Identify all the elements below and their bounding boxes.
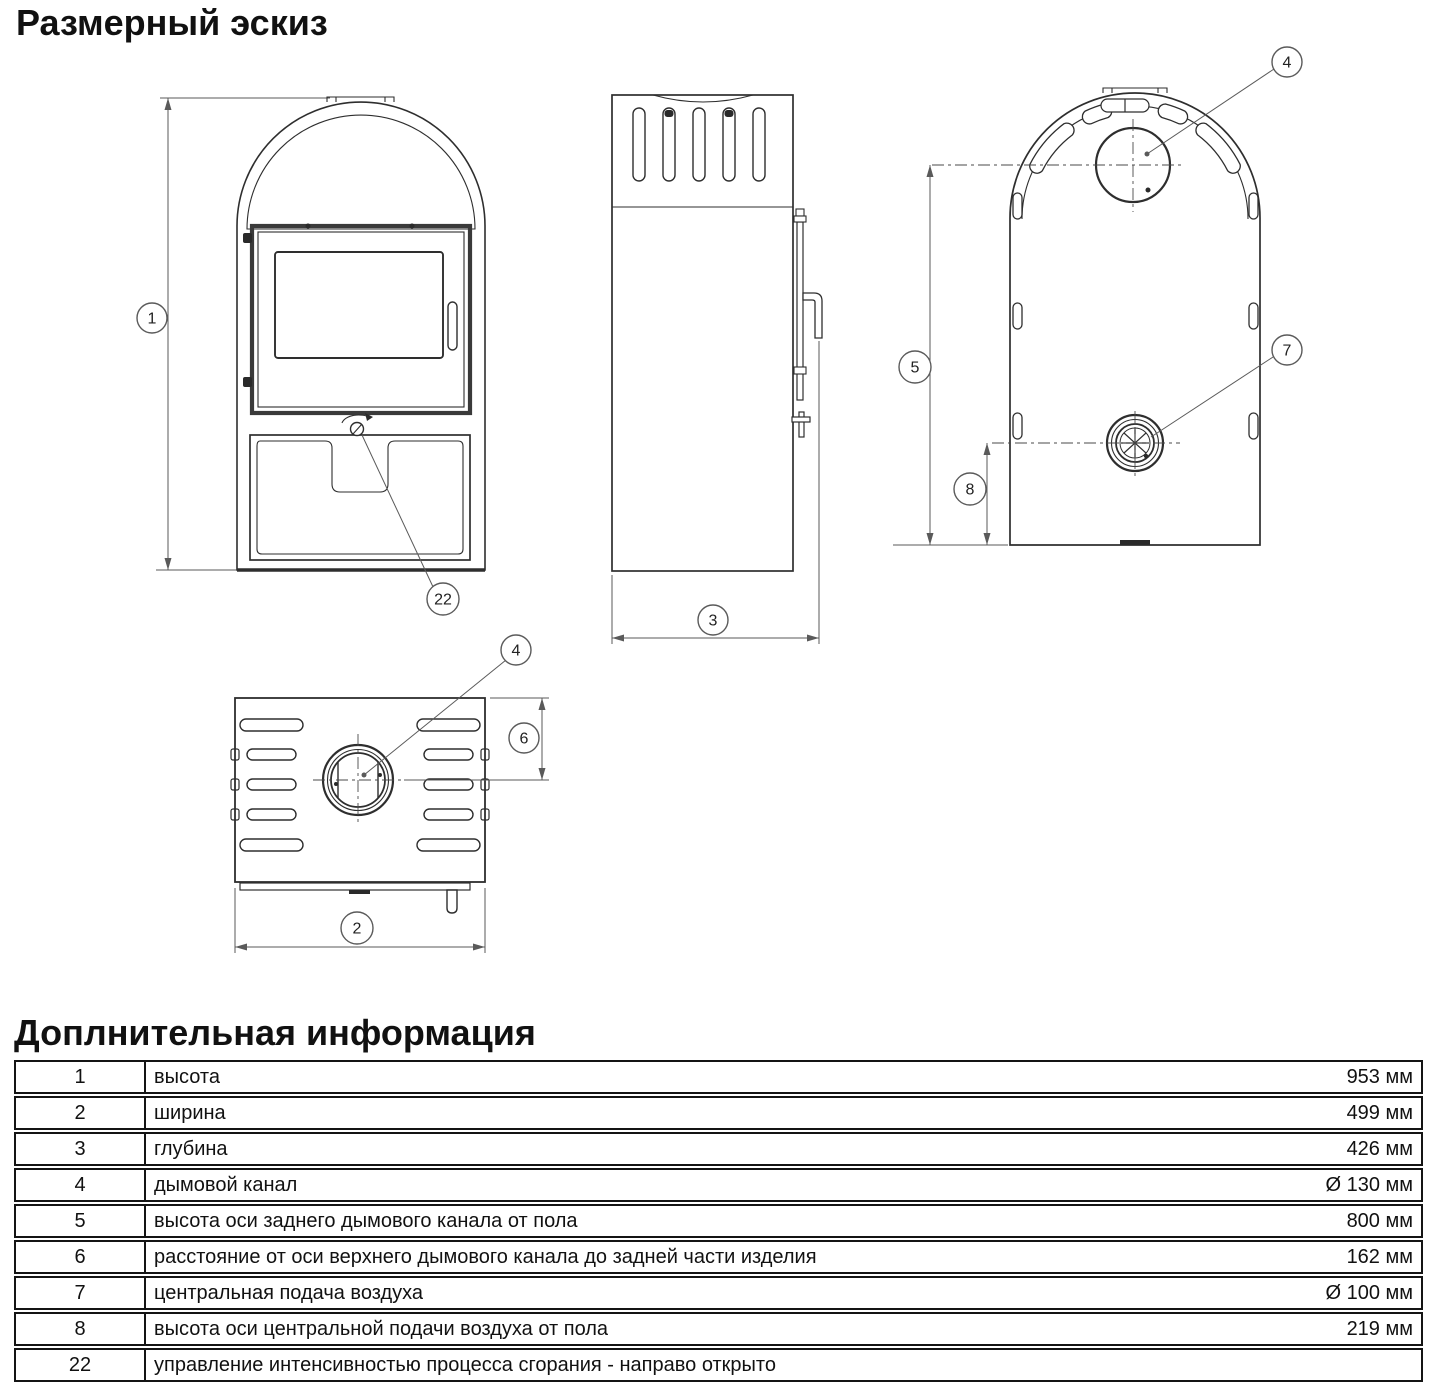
row-value: 953 мм [1205,1060,1423,1094]
top-front-edge [240,883,470,890]
balloons: 1 22 3 4 5 7 8 4 6 2 [137,47,1302,944]
top-front-mark [349,890,370,894]
row-number: 2 [14,1096,146,1130]
row-label: дымовой канал [146,1168,1205,1202]
leader-dot [1145,152,1150,157]
row-value: Ø 100 мм [1205,1276,1423,1310]
row-label: высота оси центральной подачи воздуха от… [146,1312,1205,1346]
screw [306,224,311,229]
side-door-handle [803,293,822,338]
row-label: высота [146,1060,1205,1094]
row-number: 8 [14,1312,146,1346]
page: Размерный эскиз [0,0,1437,1388]
central-air-inlet [992,411,1180,476]
door-frame-inner [258,232,464,407]
row-number: 6 [14,1240,146,1274]
front-view-drawing [156,97,485,589]
balloon-4-top-label: 4 [512,643,521,660]
top-view-drawing [231,660,549,953]
table-row: 4 дымовой канал Ø 130 мм [14,1168,1423,1202]
top-flue-outlet [313,734,404,826]
dimensional-drawing: 1 22 3 4 5 7 8 4 6 2 [0,0,1437,1005]
row-number: 4 [14,1168,146,1202]
balloon-2-label: 2 [353,921,362,938]
row-value [1205,1348,1423,1382]
balloon-22-label: 22 [434,592,452,609]
door-window [275,252,443,358]
back-view-drawing [893,69,1274,545]
table-row: 1 высота 953 мм [14,1060,1423,1094]
screw [410,224,415,229]
info-section-title: Доплнительная информация [14,1012,536,1054]
balloon-5-label: 5 [911,360,920,377]
dimension-depth [612,341,819,644]
balloon-4-back-label: 4 [1283,55,1292,72]
ash-drawer [250,435,470,560]
table-row: 5 высота оси заднего дымового канала от … [14,1204,1423,1238]
row-label: высота оси заднего дымового канала от по… [146,1204,1205,1238]
side-body-outline [612,95,793,571]
row-value: 499 мм [1205,1096,1423,1130]
row-value: Ø 130 мм [1205,1168,1423,1202]
combustion-control-knob [342,413,373,436]
door-handle [448,302,457,350]
back-side-slots [1013,193,1258,439]
leader-dot [362,773,367,778]
door-hinge [243,233,252,243]
side-lower-knob [792,412,810,437]
row-value: 800 мм [1205,1204,1423,1238]
door-frame [252,226,470,413]
dimension-height [156,98,330,570]
top-handle-stub [447,890,457,913]
table-row: 2 ширина 499 мм [14,1096,1423,1130]
leader-7 [1151,357,1273,437]
info-table: 1 высота 953 мм 2 ширина 499 мм 3 глубин… [14,1058,1423,1384]
back-bottom-mark [1120,540,1150,545]
row-value: 426 мм [1205,1132,1423,1166]
balloon-3-label: 3 [709,613,718,630]
side-top-collar [653,95,753,102]
leader-22 [362,435,434,589]
table-row: 3 глубина 426 мм [14,1132,1423,1166]
door-hinge [243,377,252,387]
table-row: 6 расстояние от оси верхнего дымового ка… [14,1240,1423,1274]
side-view-drawing [612,95,822,644]
row-number: 22 [14,1348,146,1382]
row-value: 219 мм [1205,1312,1423,1346]
row-number: 5 [14,1204,146,1238]
balloon-6-label: 6 [520,731,529,748]
row-value: 162 мм [1205,1240,1423,1274]
table-row: 22 управление интенсивностью процесса сг… [14,1348,1423,1382]
row-label: управление интенсивностью процесса сгора… [146,1348,1205,1382]
balloon-7-label: 7 [1283,343,1292,360]
row-label: центральная подача воздуха [146,1276,1205,1310]
row-label: глубина [146,1132,1205,1166]
row-label: ширина [146,1096,1205,1130]
ash-drawer-inner [257,441,463,554]
balloon-1-label: 1 [148,311,157,328]
back-arch-slots [1030,99,1241,173]
balloon-8-label: 8 [966,482,975,499]
table-row: 7 центральная подача воздуха Ø 100 мм [14,1276,1423,1310]
row-number: 3 [14,1132,146,1166]
side-vent-slots [633,108,765,181]
table-row: 8 высота оси центральной подачи воздуха … [14,1312,1423,1346]
row-label: расстояние от оси верхнего дымового кана… [146,1240,1205,1274]
side-hinge-bar [794,209,806,400]
row-number: 7 [14,1276,146,1310]
row-number: 1 [14,1060,146,1094]
